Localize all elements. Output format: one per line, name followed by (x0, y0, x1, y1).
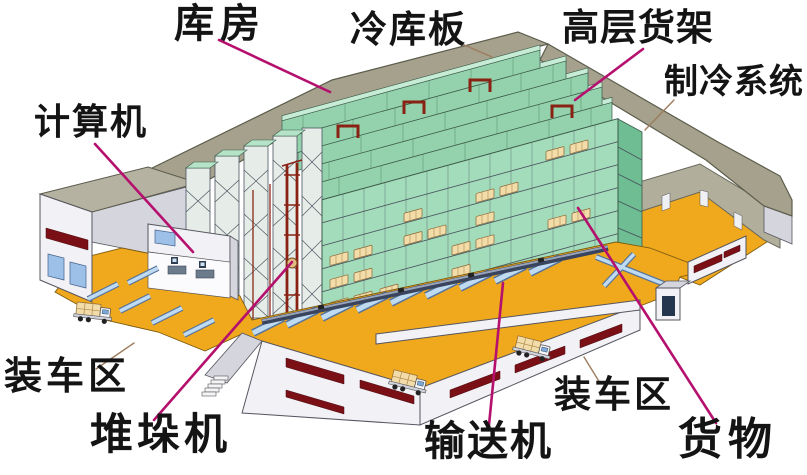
label-loading-area-left: 装车区 (4, 358, 130, 396)
leader-warehouse (219, 40, 330, 92)
label-warehouse: 库房 (174, 4, 266, 44)
label-refrigeration-system: 制冷系统 (664, 66, 804, 100)
warehouse-diagram: 库房 冷库板 高层货架 制冷系统 计算机 装车区 堆垛机 输送机 装车区 货物 (0, 0, 807, 475)
kiosk-door (662, 296, 675, 316)
stairs (202, 376, 228, 396)
computer-room (148, 224, 238, 300)
label-goods: 货物 (678, 418, 778, 462)
label-computer: 计算机 (34, 104, 148, 140)
desk (168, 266, 186, 274)
desk (196, 270, 214, 278)
annex-building (40, 194, 92, 302)
label-cold-panel: 冷库板 (350, 12, 467, 49)
label-high-rise-racks: 高层货架 (562, 10, 714, 47)
label-loading-area-right: 装车区 (554, 377, 674, 414)
label-stacker-crane: 堆垛机 (90, 414, 231, 457)
rack-end-face (618, 119, 642, 256)
label-conveyor: 输送机 (424, 421, 553, 462)
